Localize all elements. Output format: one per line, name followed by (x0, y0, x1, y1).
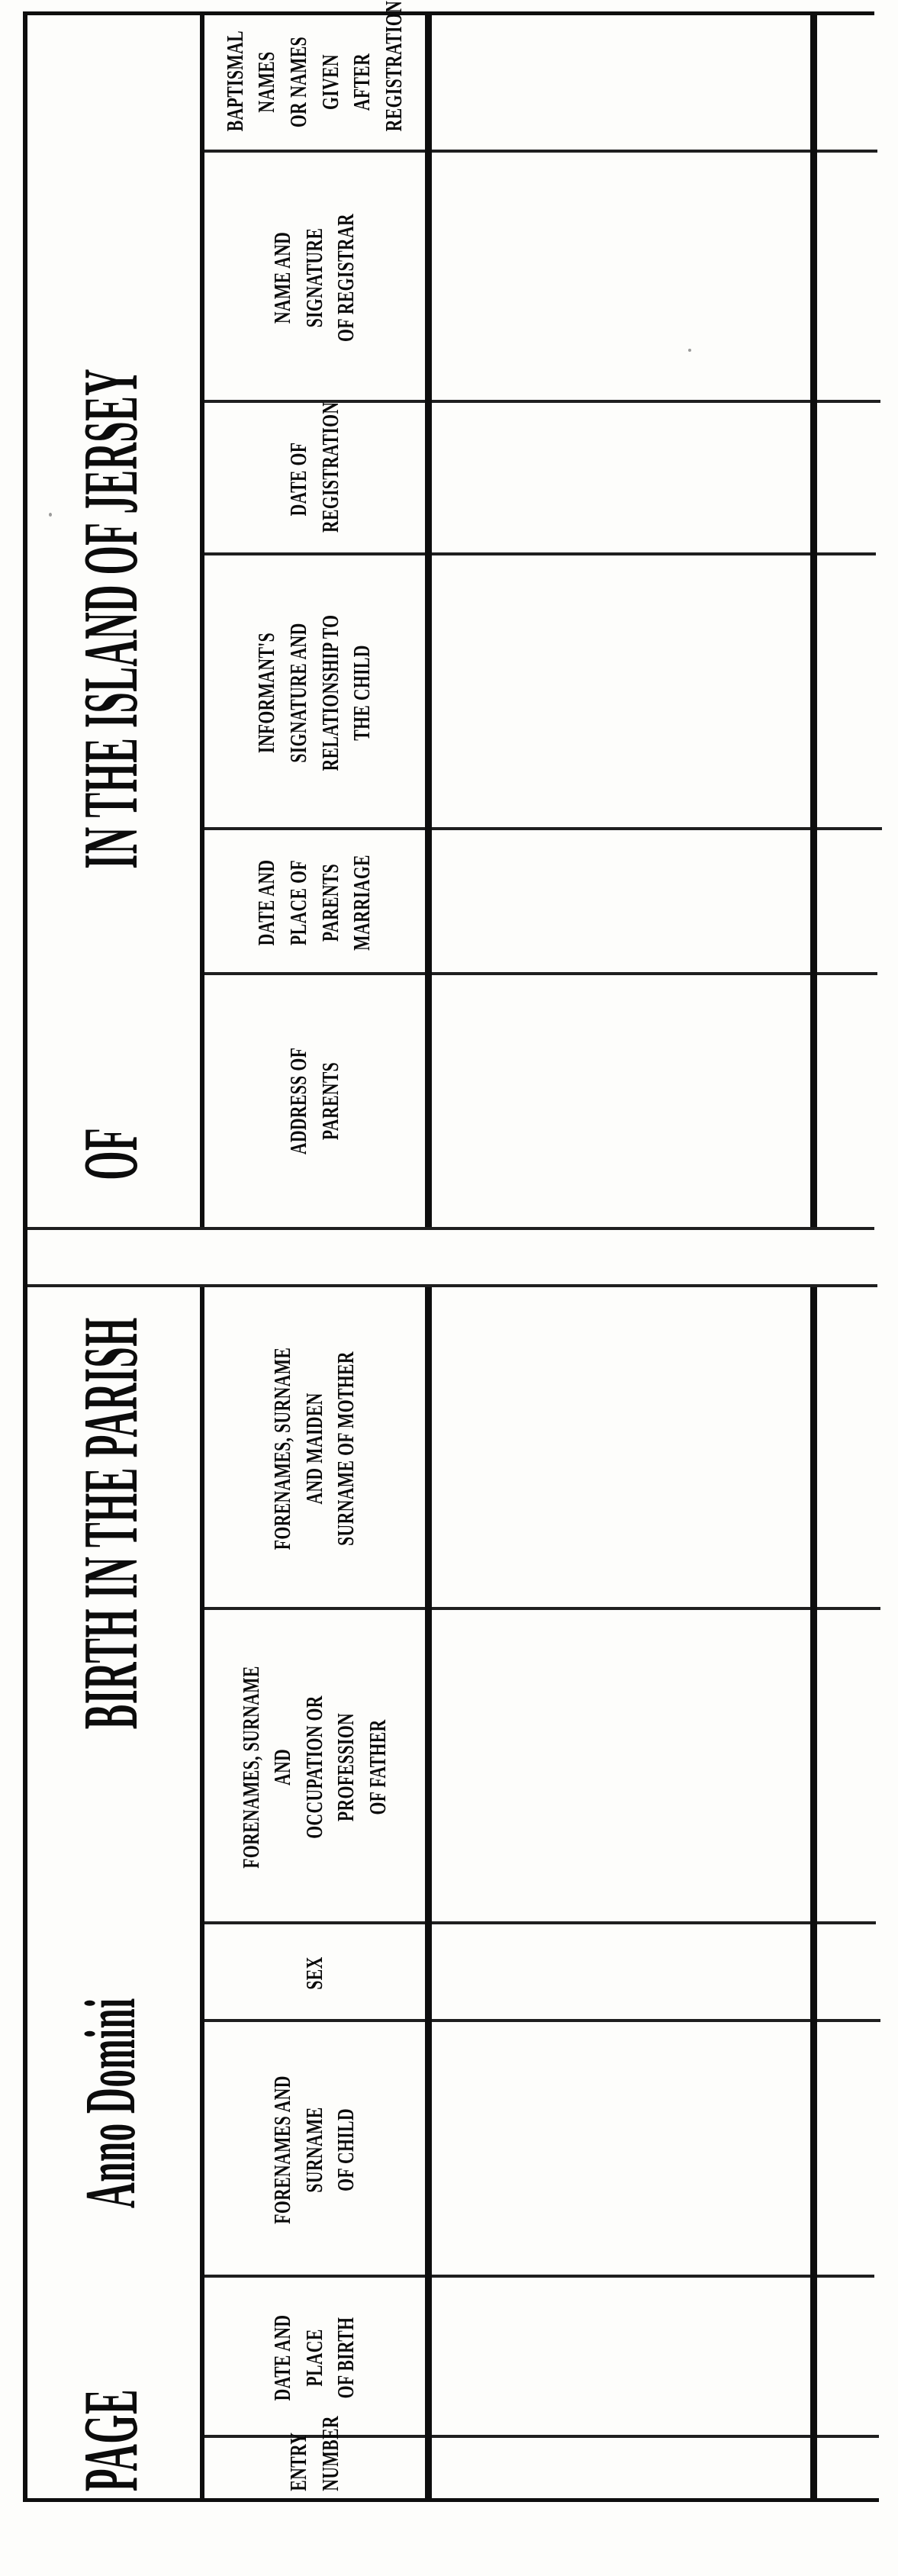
blank-entry-row-2-partial (817, 11, 898, 2500)
blank-entry-row-1 (432, 11, 810, 2500)
header-cell-address-of-parents: ADDRESS OF PARENTS (203, 975, 425, 1227)
title-island-of-jersey-text: IN THE ISLAND OF JERSEY (66, 369, 156, 869)
header-label: FORENAMES, SURNAME AND MAIDEN SURNAME OF… (266, 1335, 362, 1561)
header-cell-date-of-registration: DATE OF REGISTRATION (203, 403, 425, 555)
title-page: PAGE (29, 2375, 192, 2505)
header-label: FORENAMES AND SURNAME OF CHILD (266, 2060, 362, 2240)
scan-speckle (688, 349, 691, 352)
header-cell-date-place-of-birth: DATE AND PLACE OF BIRTH (203, 2278, 425, 2438)
header-cell-informant: INFORMANT'S SIGNATURE AND RELATIONSHIP T… (203, 555, 425, 830)
header-cell-mother: FORENAMES, SURNAME AND MAIDEN SURNAME OF… (203, 1287, 425, 1610)
header-label: DATE AND PLACE OF PARENTS MARRIAGE (250, 852, 377, 954)
header-label: DATE OF REGISTRATION (282, 426, 346, 533)
title-island-of-jersey: IN THE ISLAND OF JERSEY (29, 310, 192, 928)
header-cell-sex: SEX (203, 1924, 425, 2022)
header-row-separator (425, 11, 432, 1227)
title-anno-domini-text: Anno Domini (69, 1998, 152, 2208)
header-label: ADDRESS OF PARENTS (282, 1013, 346, 1190)
header-cell-parents-marriage: DATE AND PLACE OF PARENTS MARRIAGE (203, 830, 425, 975)
header-row-separator (425, 1287, 432, 2500)
scanned-register-page: PAGE Anno Domini BIRTH IN THE PARISH OF … (0, 0, 898, 2576)
header-label: SEX (298, 1939, 330, 2008)
header-label: ENTRY NUMBER (282, 2447, 346, 2491)
header-cell-entry-number: ENTRY NUMBER (203, 2438, 425, 2500)
title-of-text: OF (66, 1128, 156, 1180)
header-label: NAME AND SIGNATURE OF REGISTRAR (266, 190, 362, 365)
header-label: FORENAMES, SURNAME AND OCCUPATION OR PRO… (235, 1657, 394, 1877)
title-birth-in-the-parish-text: BIRTH IN THE PARISH (66, 1317, 156, 1729)
title-birth-in-the-parish: BIRTH IN THE PARISH (29, 1279, 192, 1767)
screenshot-root: { "page": { "kind": "scanned birth regis… (0, 0, 898, 2576)
title-page-text: PAGE (66, 2389, 156, 2491)
data-row-separator (810, 1287, 817, 2500)
data-row-separator (810, 11, 817, 1227)
header-cell-baptismal-names: BAPTISMAL NAMES OR NAMES GIVEN AFTER REG… (203, 11, 425, 153)
table-top-border (23, 11, 27, 2500)
header-cell-registrar: NAME AND SIGNATURE OF REGISTRAR (203, 153, 425, 403)
header-cell-child-name: FORENAMES AND SURNAME OF CHILD (203, 2022, 425, 2278)
header-cell-father: FORENAMES, SURNAME AND OCCUPATION OR PRO… (203, 1610, 425, 1924)
title-of: OF (29, 1096, 192, 1211)
header-label: DATE AND PLACE OF BIRTH (266, 2302, 362, 2414)
header-label: BAPTISMAL NAMES OR NAMES GIVEN AFTER REG… (219, 33, 409, 132)
scan-speckle (49, 513, 52, 517)
header-label: INFORMANT'S SIGNATURE AND RELATIONSHIP T… (250, 597, 377, 789)
title-anno-domini: Anno Domini (29, 1950, 192, 2256)
